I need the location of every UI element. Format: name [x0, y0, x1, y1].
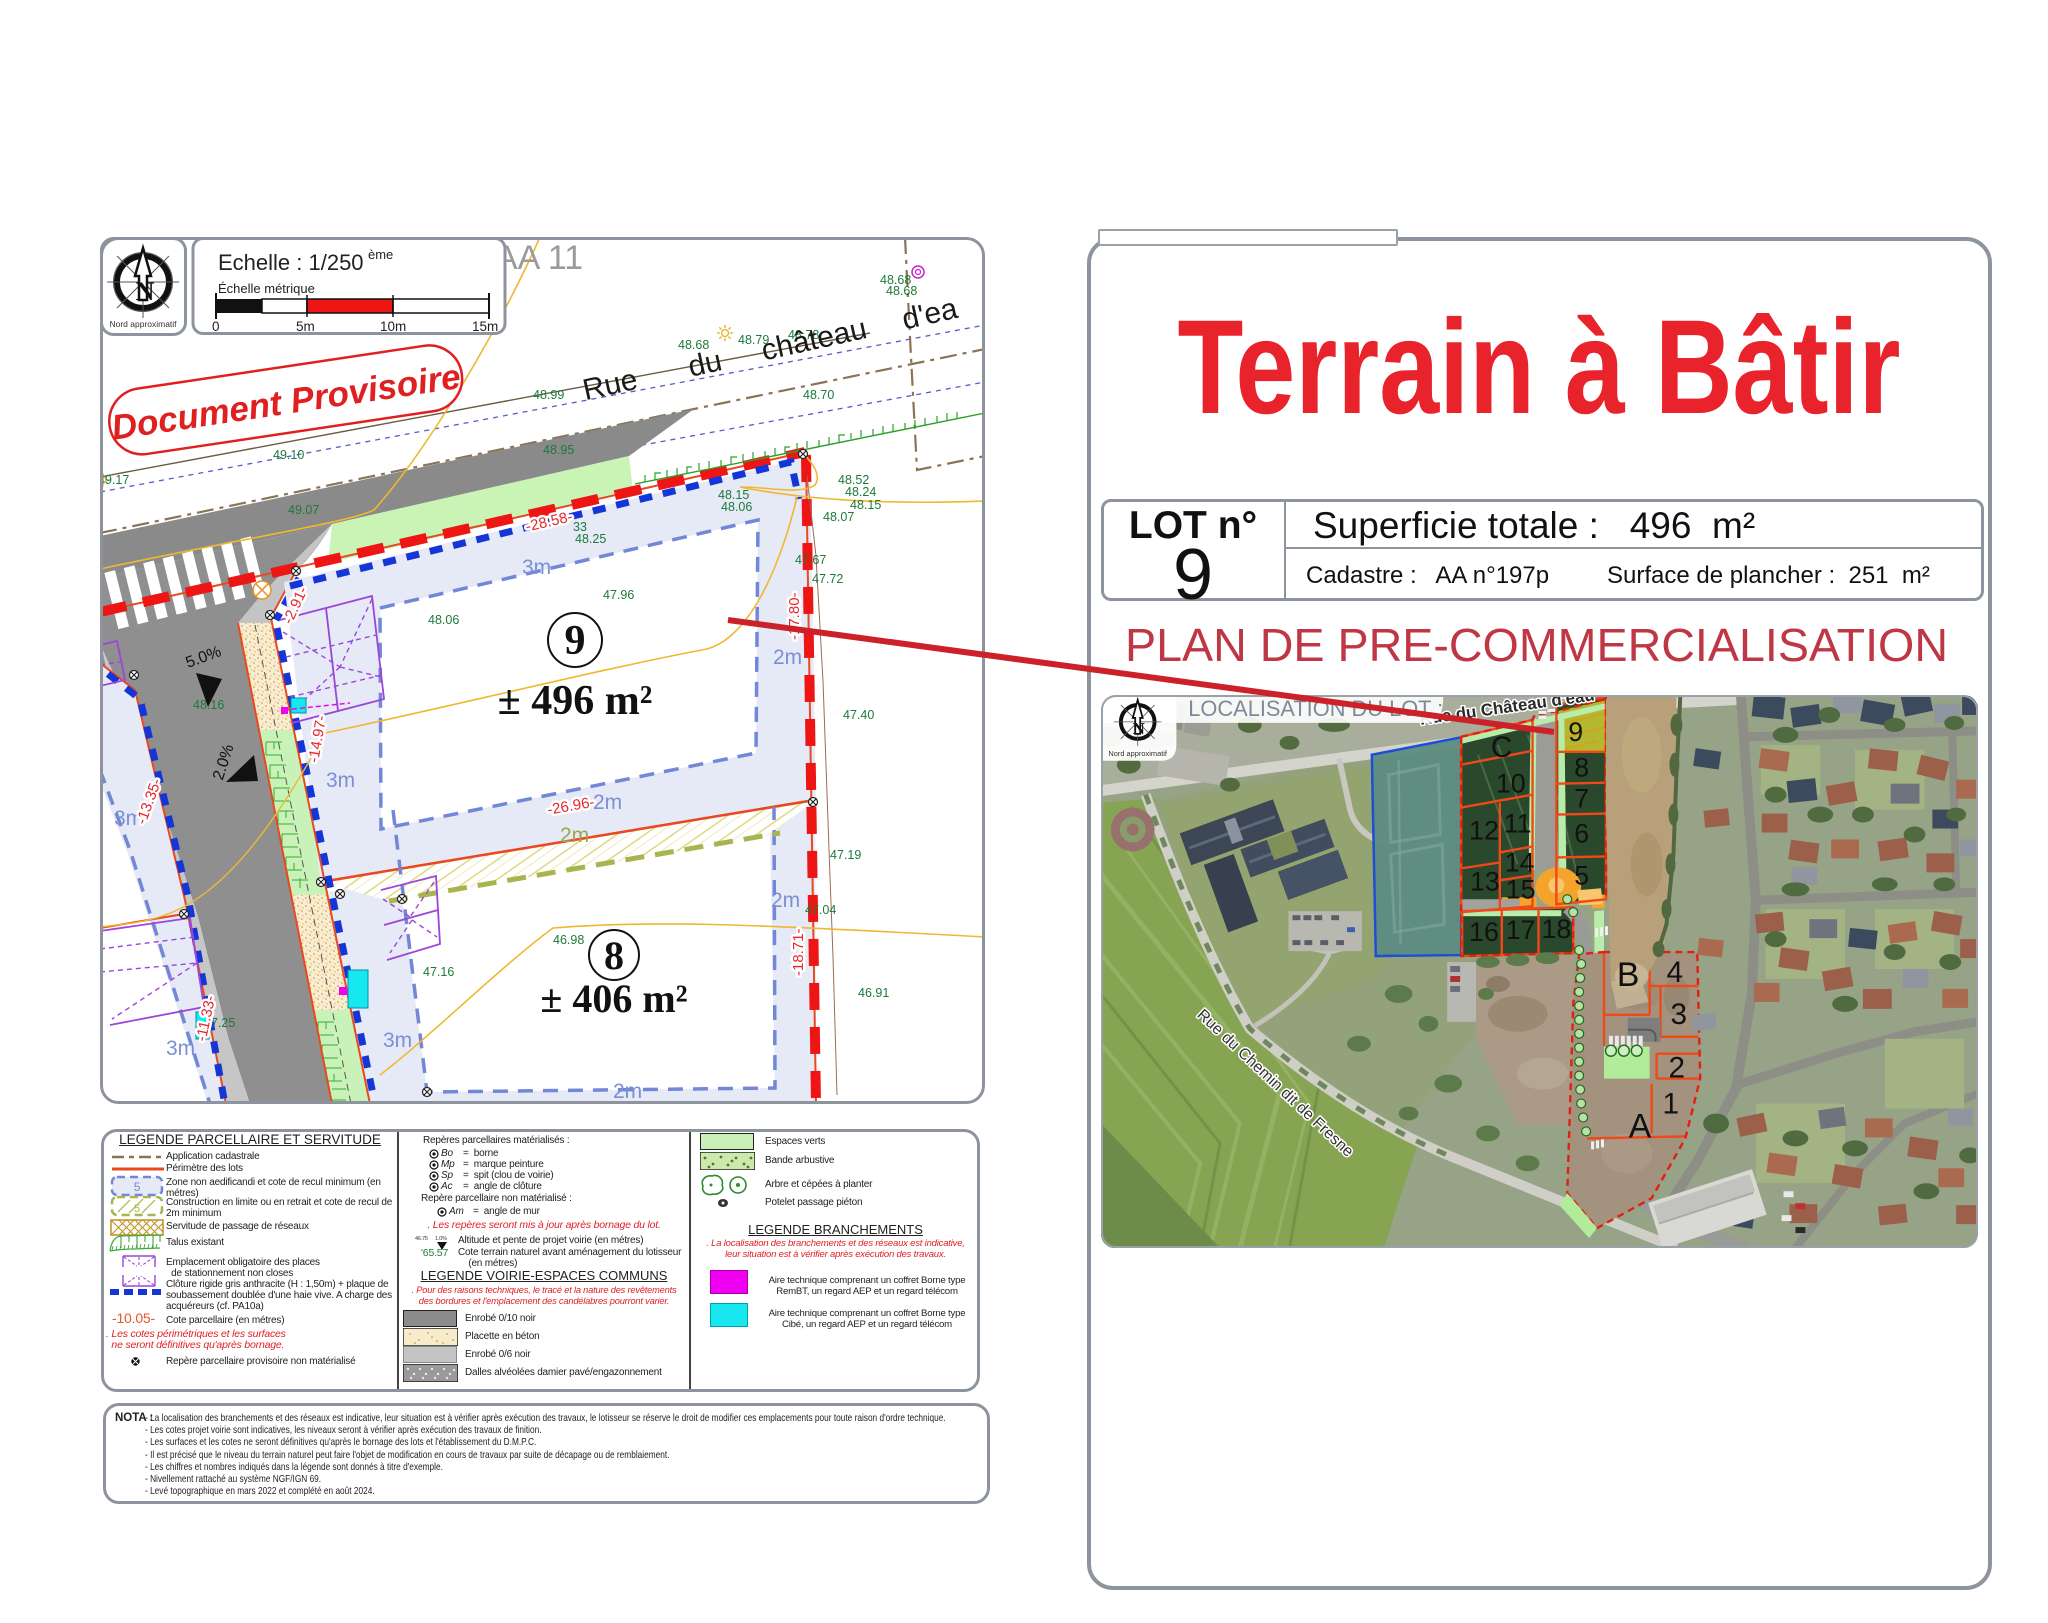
svg-text:± 406 m²: ± 406 m²	[540, 976, 687, 1021]
svg-text:47.96: 47.96	[603, 588, 634, 602]
svg-text:10: 10	[1496, 769, 1526, 799]
svg-text:48.16: 48.16	[193, 698, 224, 712]
svg-text:18: 18	[1541, 914, 1571, 944]
svg-text:3: 3	[1670, 998, 1687, 1031]
svg-text:-17.80-: -17.80-	[786, 592, 803, 640]
svg-text:15: 15	[1506, 874, 1536, 904]
svg-text:Echelle : 1/250: Echelle : 1/250	[218, 250, 364, 275]
svg-text:1: 1	[1663, 1087, 1680, 1120]
svg-text:48.07: 48.07	[823, 510, 854, 524]
svg-text:9: 9	[565, 618, 586, 664]
svg-text:17: 17	[1506, 915, 1536, 945]
svg-text:48.06: 48.06	[428, 613, 459, 627]
svg-text:LOCALISATION DU LOT :: LOCALISATION DU LOT :	[1188, 696, 1443, 721]
svg-text:15m: 15m	[472, 319, 498, 334]
svg-text:9: 9	[1568, 717, 1583, 747]
svg-text:N: N	[136, 277, 155, 306]
svg-text:13: 13	[1470, 866, 1500, 896]
svg-text:48.24: 48.24	[845, 485, 876, 499]
svg-text:2m: 2m	[560, 824, 589, 847]
svg-text:2m: 2m	[771, 889, 800, 912]
svg-text:48.25: 48.25	[575, 532, 606, 546]
svg-text:47.19: 47.19	[830, 848, 861, 862]
svg-text:5: 5	[134, 1180, 141, 1194]
svg-text:du: du	[685, 344, 725, 383]
svg-text:8: 8	[1574, 753, 1589, 783]
svg-text:6: 6	[1574, 818, 1589, 848]
svg-text:-18.71-: -18.71-	[790, 928, 807, 976]
svg-text:0: 0	[212, 319, 220, 334]
svg-text:5: 5	[1574, 860, 1589, 890]
svg-text:3m: 3m	[326, 769, 355, 792]
svg-text:2: 2	[1668, 1052, 1685, 1085]
svg-text:48.68: 48.68	[886, 284, 917, 298]
svg-text:49.17: 49.17	[100, 473, 129, 487]
svg-text:2m: 2m	[613, 1080, 642, 1103]
svg-text:2m: 2m	[773, 646, 802, 669]
svg-text:48.99: 48.99	[533, 388, 564, 402]
svg-text:14: 14	[1505, 847, 1535, 877]
svg-text:1.0%: 1.0%	[435, 1236, 447, 1242]
svg-text:48.70: 48.70	[803, 388, 834, 402]
svg-text:3m: 3m	[522, 556, 551, 579]
svg-text:49.07: 49.07	[288, 503, 319, 517]
svg-text:A: A	[1629, 1107, 1652, 1145]
svg-text:10m: 10m	[380, 319, 406, 334]
svg-text:8: 8	[604, 933, 624, 978]
svg-text:Échelle métrique: Échelle métrique	[218, 281, 315, 296]
svg-text:46.91: 46.91	[858, 986, 889, 1000]
svg-text:5: 5	[134, 1203, 140, 1215]
svg-text:Nord approximatif: Nord approximatif	[109, 319, 177, 329]
svg-text:± 496 m²: ± 496 m²	[498, 678, 653, 724]
svg-text:2m: 2m	[593, 791, 622, 814]
svg-text:AA 11: AA 11	[495, 239, 583, 277]
svg-text:Nord approximatif: Nord approximatif	[1108, 749, 1168, 758]
svg-text:46.75: 46.75	[415, 1236, 428, 1242]
svg-text:12: 12	[1469, 815, 1499, 845]
svg-text:47.16: 47.16	[423, 965, 454, 979]
svg-text:47.72: 47.72	[812, 572, 843, 586]
svg-text:PLAN DE PRE-COMMERCIALISATION: PLAN DE PRE-COMMERCIALISATION	[1125, 619, 1948, 671]
svg-text:47.04: 47.04	[805, 903, 836, 917]
svg-text:48.06: 48.06	[721, 500, 752, 514]
svg-text:B: B	[1617, 956, 1639, 994]
svg-text:3m: 3m	[166, 1037, 195, 1060]
svg-text:Terrain à Bâtir: Terrain à Bâtir	[1178, 293, 1901, 440]
svg-text:46.98: 46.98	[553, 933, 584, 947]
svg-text:48.15: 48.15	[850, 498, 881, 512]
svg-text:4: 4	[1666, 956, 1683, 989]
svg-text:ème: ème	[368, 247, 393, 262]
svg-text:16: 16	[1469, 917, 1499, 947]
svg-text:7: 7	[1574, 784, 1589, 814]
svg-text:11: 11	[1504, 808, 1532, 838]
svg-text:47.67: 47.67	[795, 553, 826, 567]
svg-text:3m: 3m	[383, 1029, 412, 1052]
svg-text:49.10: 49.10	[273, 448, 304, 462]
svg-text:47.40: 47.40	[843, 708, 874, 722]
svg-text:C: C	[1491, 731, 1512, 764]
svg-text:N: N	[1133, 719, 1145, 738]
svg-text:48.95: 48.95	[543, 443, 574, 457]
svg-text:5m: 5m	[296, 319, 315, 334]
